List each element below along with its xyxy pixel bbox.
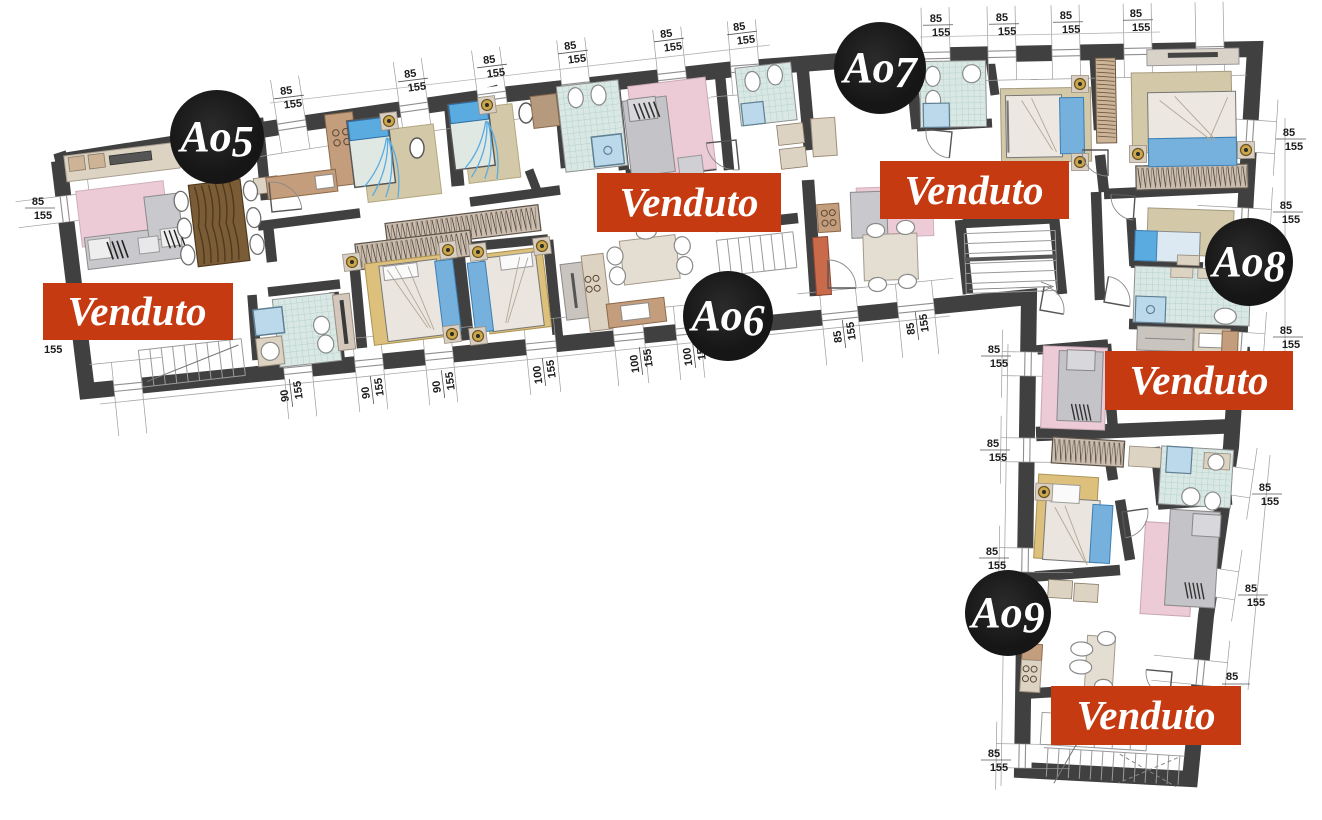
svg-text:155: 155: [1282, 214, 1300, 226]
svg-text:85: 85: [832, 330, 845, 344]
svg-text:Ao8: Ao8: [1209, 237, 1285, 291]
svg-text:155: 155: [736, 34, 756, 48]
svg-text:90: 90: [431, 380, 444, 394]
svg-text:Ao7: Ao7: [840, 43, 918, 97]
svg-text:155: 155: [407, 81, 427, 95]
svg-text:155: 155: [545, 359, 559, 379]
svg-text:Ao6: Ao6: [688, 291, 764, 345]
svg-text:155: 155: [642, 348, 656, 368]
svg-text:85: 85: [279, 85, 293, 98]
svg-text:155: 155: [988, 560, 1006, 572]
svg-text:155: 155: [932, 27, 951, 39]
svg-text:90: 90: [360, 386, 373, 400]
svg-text:155: 155: [990, 358, 1008, 370]
svg-text:85: 85: [563, 40, 577, 53]
svg-text:155: 155: [845, 321, 859, 341]
svg-text:155: 155: [486, 67, 506, 81]
svg-text:155: 155: [663, 41, 683, 55]
svg-text:155: 155: [373, 377, 387, 397]
svg-text:85: 85: [1283, 127, 1295, 139]
svg-text:155: 155: [292, 380, 306, 400]
svg-text:155: 155: [989, 452, 1007, 464]
svg-text:85: 85: [482, 54, 496, 67]
svg-text:85: 85: [987, 438, 999, 450]
svg-text:85: 85: [1060, 10, 1072, 22]
svg-text:155: 155: [998, 26, 1017, 38]
svg-text:85: 85: [403, 68, 417, 81]
svg-text:155: 155: [1132, 22, 1151, 34]
svg-text:155: 155: [444, 371, 458, 391]
svg-text:155: 155: [1261, 496, 1279, 508]
svg-text:155: 155: [1285, 141, 1303, 153]
svg-text:Venduto: Venduto: [1077, 692, 1216, 738]
svg-text:85: 85: [1259, 482, 1271, 494]
svg-text:85: 85: [1245, 583, 1257, 595]
svg-text:85: 85: [988, 748, 1000, 760]
svg-text:Ao5: Ao5: [177, 112, 253, 166]
svg-text:155: 155: [1062, 24, 1081, 36]
svg-text:85: 85: [32, 196, 44, 208]
svg-text:85: 85: [732, 21, 746, 34]
svg-text:85: 85: [659, 28, 673, 41]
svg-text:85: 85: [1280, 325, 1292, 337]
svg-text:155: 155: [34, 210, 52, 222]
svg-text:155: 155: [990, 762, 1008, 774]
svg-text:Venduto: Venduto: [620, 179, 759, 225]
svg-text:85: 85: [930, 13, 942, 25]
svg-text:Venduto: Venduto: [1130, 357, 1269, 403]
svg-text:155: 155: [918, 313, 932, 333]
svg-text:85: 85: [1226, 671, 1238, 683]
svg-text:85: 85: [1130, 8, 1142, 20]
svg-text:85: 85: [905, 322, 918, 336]
svg-text:155: 155: [44, 344, 62, 356]
svg-text:85: 85: [986, 546, 998, 558]
svg-text:155: 155: [283, 98, 303, 112]
svg-text:Venduto: Venduto: [68, 288, 207, 334]
svg-text:90: 90: [279, 389, 292, 403]
svg-text:85: 85: [1280, 200, 1292, 212]
svg-text:155: 155: [567, 53, 587, 67]
svg-text:Venduto: Venduto: [905, 167, 1044, 213]
svg-text:155: 155: [1247, 597, 1265, 609]
svg-text:155: 155: [1282, 339, 1300, 351]
svg-text:85: 85: [996, 12, 1008, 24]
svg-text:85: 85: [988, 344, 1000, 356]
svg-text:Ao9: Ao9: [968, 588, 1044, 642]
